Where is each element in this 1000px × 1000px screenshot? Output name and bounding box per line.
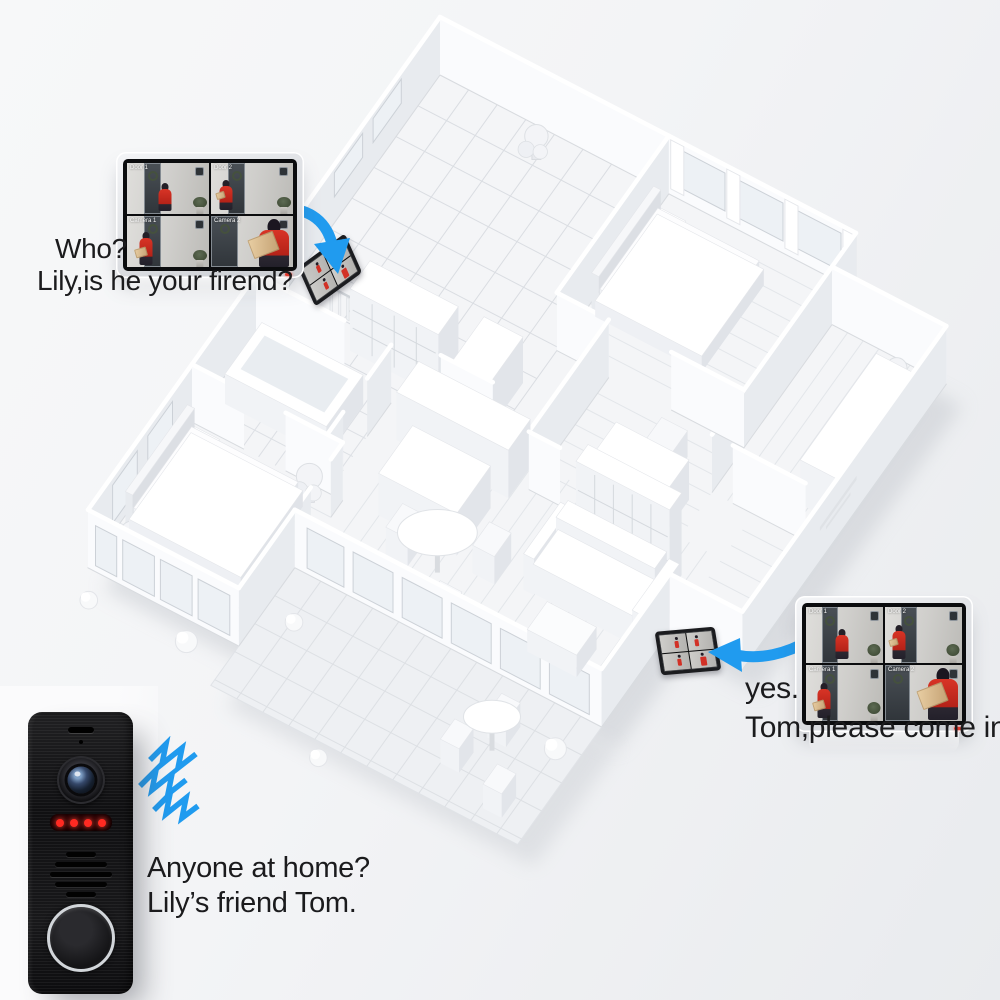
sound-waves-icon <box>136 736 246 831</box>
feed-label: Camera 2 <box>214 218 240 225</box>
feed-label: Door 1 <box>130 165 148 172</box>
caption-line: Anyone at home? <box>147 851 370 886</box>
feed-label: Door 2 <box>888 609 906 616</box>
camera-lens <box>67 767 94 794</box>
mini-feed <box>659 633 687 653</box>
visitor-person <box>891 625 907 660</box>
person-jacket <box>835 635 848 659</box>
porch-plant <box>277 197 291 214</box>
person-jacket <box>158 189 171 211</box>
caption-visitor-at-door: Anyone at home? Lily’s friend Tom. <box>147 851 370 921</box>
feed-label: Door 2 <box>214 165 232 172</box>
doorbell-device <box>28 712 133 994</box>
ir-led-window <box>50 814 112 831</box>
visitor-person <box>218 180 234 212</box>
caption-owner-reply: yes. Tom,please come in. <box>745 669 1000 747</box>
caption-line: Lily’s friend Tom. <box>147 886 370 921</box>
mini-feed <box>662 652 690 672</box>
camera-feed-door1: Door 1 <box>806 607 883 663</box>
caption-line: Lily,is he your firend? <box>37 265 293 297</box>
microphone-hole <box>79 740 83 744</box>
microphone-slit <box>68 727 94 733</box>
speaker-grille <box>46 852 116 897</box>
caption-line: yes. <box>745 669 1000 708</box>
camera-feed-door2: Door 2 <box>211 163 293 214</box>
caption-line: Who? <box>37 233 293 265</box>
caption-line: Tom,please come in. <box>745 708 1000 747</box>
porch-plant <box>868 644 881 663</box>
porch-panel <box>196 168 203 176</box>
marketing-scene: Door 1 Door 2 <box>0 0 1000 1000</box>
visitor-person <box>157 183 173 212</box>
call-button <box>47 904 115 972</box>
porch-panel <box>950 612 957 620</box>
caption-visitor-question: Who? Lily,is he your firend? <box>37 233 293 297</box>
porch-panel <box>196 221 203 229</box>
doorbell-camera <box>57 756 105 804</box>
feed-label: Camera 1 <box>130 218 156 225</box>
porch-panel <box>871 612 878 620</box>
feed-label: Door 1 <box>809 609 827 616</box>
porch-plant <box>947 644 960 663</box>
camera-feed-door2: Door 2 <box>885 607 962 663</box>
porch-panel <box>280 168 287 176</box>
camera-feed-door1: Door 1 <box>127 163 209 214</box>
visitor-person <box>834 629 850 660</box>
porch-plant <box>193 197 207 214</box>
